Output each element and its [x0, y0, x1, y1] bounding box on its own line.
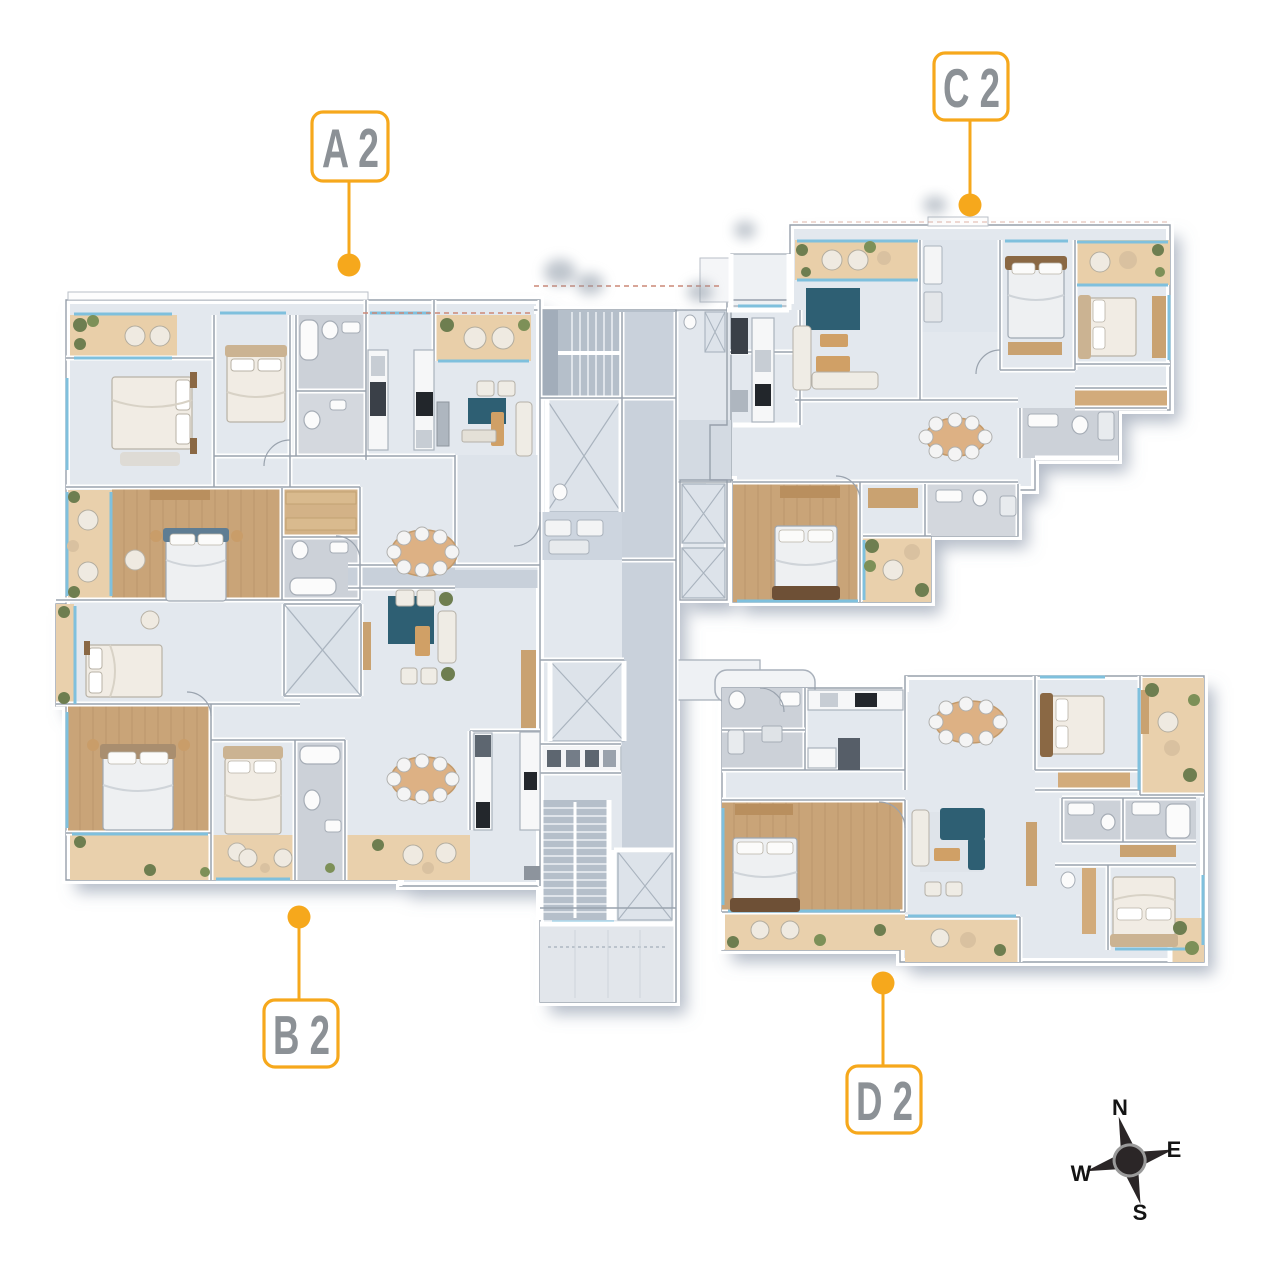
- svg-text:W: W: [1071, 1161, 1092, 1186]
- svg-text:C 2: C 2: [943, 57, 1000, 119]
- svg-text:S: S: [1133, 1200, 1148, 1225]
- svg-text:B 2: B 2: [273, 1004, 330, 1066]
- svg-text:N: N: [1112, 1095, 1128, 1120]
- svg-text:E: E: [1167, 1137, 1182, 1162]
- svg-text:A 2: A 2: [322, 117, 379, 179]
- svg-text:D 2: D 2: [856, 1070, 913, 1132]
